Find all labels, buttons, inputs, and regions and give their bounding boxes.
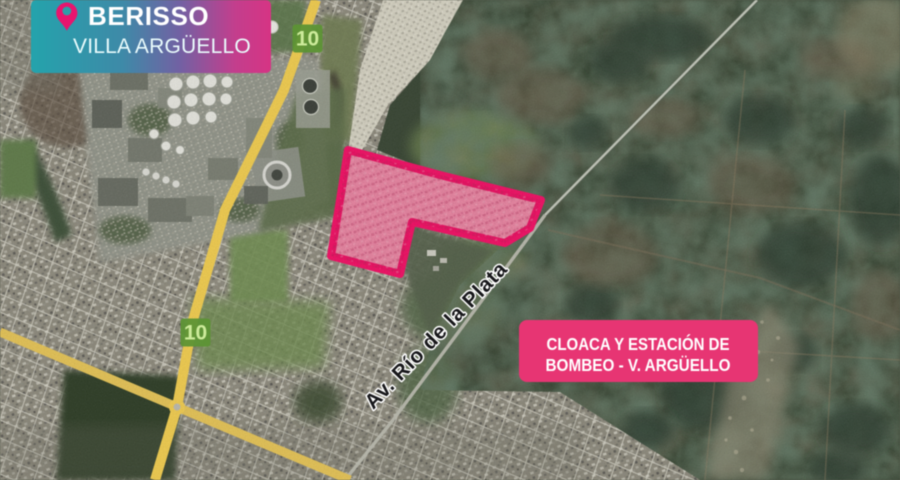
svg-text:CLOACA Y ESTACIÓN DE: CLOACA Y ESTACIÓN DE	[547, 333, 730, 354]
svg-text:10: 10	[296, 28, 319, 51]
svg-text:BOMBEO - V. ARGÜELLO: BOMBEO - V. ARGÜELLO	[546, 355, 731, 375]
svg-text:10: 10	[184, 322, 207, 345]
svg-text:VILLA ARGÜELLO: VILLA ARGÜELLO	[73, 35, 251, 58]
svg-text:BERISSO: BERISSO	[88, 1, 209, 31]
